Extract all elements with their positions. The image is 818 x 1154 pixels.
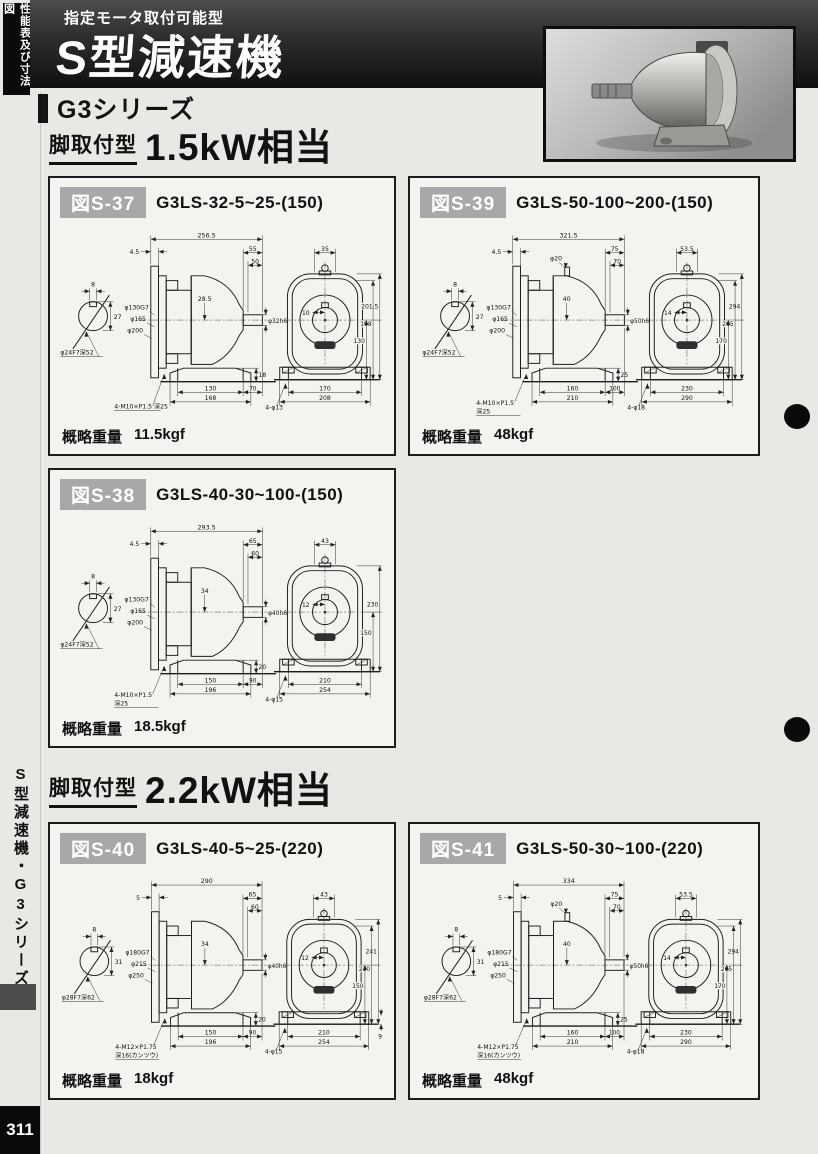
svg-text:27: 27	[114, 314, 122, 321]
svg-text:31: 31	[477, 959, 485, 966]
svg-text:φ200: φ200	[127, 620, 143, 627]
figure-model-number: G3LS-50-30~100-(220)	[516, 839, 703, 859]
svg-text:28.5: 28.5	[198, 296, 212, 303]
svg-text:深25: 深25	[476, 407, 490, 415]
figure-tag: 図S-37	[60, 187, 146, 218]
svg-text:φ130G7: φ130G7	[124, 304, 149, 311]
figure-header: 図S-39 G3LS-50-100~200-(150)	[420, 187, 713, 218]
svg-text:53.5: 53.5	[680, 246, 694, 253]
figure-model-number: G3LS-40-5~25-(220)	[156, 839, 323, 859]
svg-text:290: 290	[201, 878, 213, 885]
svg-text:φ250: φ250	[128, 972, 144, 979]
technical-drawing: 827φ24F7深52256.54.55550φ130G7φ165φ20028.…	[52, 220, 392, 424]
svg-text:294: 294	[728, 950, 739, 956]
svg-text:130: 130	[205, 385, 217, 392]
svg-text:14: 14	[664, 310, 672, 317]
svg-text:208: 208	[319, 395, 331, 402]
weight-value: 18kgf	[134, 1070, 173, 1091]
svg-text:34: 34	[201, 588, 209, 595]
svg-text:φ28F7深62: φ28F7深62	[424, 993, 457, 1001]
svg-text:φ20: φ20	[550, 255, 562, 262]
svg-text:8: 8	[91, 281, 95, 288]
page-number: 311	[0, 1106, 40, 1154]
svg-text:φ200: φ200	[127, 328, 143, 335]
svg-text:12: 12	[301, 956, 309, 962]
svg-text:φ165: φ165	[130, 316, 146, 323]
svg-text:210: 210	[567, 395, 579, 402]
corner-index-tab: 性能表及び寸法図	[3, 3, 30, 95]
svg-text:100: 100	[609, 386, 620, 392]
svg-text:4-φ18: 4-φ18	[627, 1049, 645, 1056]
punch-hole-dot	[784, 404, 810, 429]
svg-text:4-φ15: 4-φ15	[265, 1049, 283, 1056]
svg-text:φ20: φ20	[550, 901, 562, 908]
svg-text:160: 160	[567, 1030, 579, 1037]
svg-text:8: 8	[454, 927, 458, 934]
weight-label: 概略重量	[62, 426, 122, 447]
technical-drawing: 827φ24F7深52293.54.56560φ130G7φ165φ20034φ…	[52, 512, 392, 716]
product-photo	[543, 26, 796, 162]
technical-drawing: 831φ28F7深6229056560φ180G7φ215φ25034φ40h6…	[52, 866, 392, 1068]
svg-text:4.5: 4.5	[491, 249, 501, 256]
svg-text:4-M10×P1.5: 4-M10×P1.5	[476, 400, 514, 407]
drawing-svg: 831φ28F7深6229056560φ180G7φ215φ25034φ40h6…	[52, 866, 392, 1068]
svg-text:170: 170	[716, 338, 728, 345]
svg-text:55: 55	[249, 246, 257, 253]
svg-text:φ50h6: φ50h6	[630, 319, 649, 325]
svg-text:φ130G7: φ130G7	[486, 304, 511, 311]
svg-text:31: 31	[115, 959, 123, 966]
power-rating-label: 2.2kW相当	[145, 773, 333, 808]
svg-text:φ250: φ250	[490, 972, 506, 979]
svg-text:201.5: 201.5	[361, 304, 378, 311]
figure-header: 図S-41 G3LS-50-30~100-(220)	[420, 833, 703, 864]
svg-text:φ50h6: φ50h6	[630, 964, 649, 970]
svg-text:150: 150	[205, 1030, 217, 1037]
weight-value: 11.5kgf	[134, 426, 185, 447]
svg-text:170: 170	[714, 984, 725, 990]
svg-text:φ24F7深52: φ24F7深52	[422, 349, 455, 357]
svg-text:53.5: 53.5	[679, 891, 693, 898]
svg-text:φ24F7深52: φ24F7深52	[60, 349, 93, 357]
sidebar-index-tab	[0, 984, 36, 1010]
svg-text:4-M12×P1.75: 4-M12×P1.75	[477, 1044, 518, 1051]
svg-text:196: 196	[205, 1039, 217, 1046]
svg-text:4-M10×P1.5: 4-M10×P1.5	[114, 692, 152, 699]
svg-text:150: 150	[352, 984, 363, 990]
figure-s40: 図S-40 G3LS-40-5~25-(220) 831φ28F7深622905…	[48, 822, 396, 1100]
svg-text:256.5: 256.5	[198, 232, 216, 239]
weight-value: 18.5kgf	[134, 718, 186, 739]
power-rating-label: 1.5kW相当	[145, 130, 333, 165]
svg-text:4-φ18: 4-φ18	[627, 405, 645, 412]
figure-s38: 図S-38 G3LS-40-30~100-(150) 827φ24F7深5229…	[48, 468, 396, 748]
figure-tag: 図S-39	[420, 187, 506, 218]
svg-text:4-M10×P1.5 深25: 4-M10×P1.5 深25	[114, 403, 168, 411]
svg-text:9: 9	[378, 1034, 382, 1040]
svg-text:150: 150	[205, 677, 217, 684]
svg-text:90: 90	[249, 678, 257, 684]
svg-text:34: 34	[201, 941, 209, 948]
figure-model-number: G3LS-32-5~25-(150)	[156, 193, 323, 213]
svg-text:241: 241	[366, 950, 377, 956]
weight-value: 48kgf	[494, 426, 533, 447]
svg-text:254: 254	[318, 1039, 330, 1046]
svg-text:50: 50	[251, 258, 259, 265]
weight-label: 概略重量	[62, 718, 122, 739]
svg-text:290: 290	[680, 1039, 692, 1046]
figure-tag: 図S-40	[60, 833, 146, 864]
figure-s39: 図S-39 G3LS-50-100~200-(150) 827φ24F7深523…	[408, 176, 760, 456]
mount-type-label: 脚取付型	[49, 772, 137, 808]
weight-label: 概略重量	[62, 1070, 122, 1091]
weight-row: 概略重量 11.5kgf	[62, 426, 185, 447]
svg-text:160: 160	[567, 385, 579, 392]
page-edge-line	[40, 92, 41, 1154]
svg-text:4.5: 4.5	[129, 541, 139, 548]
series-title: G3シリーズ	[57, 90, 195, 126]
svg-text:210: 210	[318, 1030, 330, 1037]
svg-text:φ32h6: φ32h6	[268, 319, 287, 325]
drawing-svg: 827φ24F7深52321.54.5φ207570φ130G7φ165φ200…	[412, 220, 756, 424]
weight-row: 概略重量 18.5kgf	[62, 718, 186, 739]
svg-text:334: 334	[563, 878, 575, 885]
svg-text:75: 75	[611, 246, 619, 253]
svg-text:φ40h6: φ40h6	[268, 611, 287, 617]
svg-text:φ165: φ165	[130, 608, 146, 615]
svg-text:φ200: φ200	[489, 328, 505, 335]
svg-text:φ215: φ215	[131, 961, 147, 968]
weight-value: 48kgf	[494, 1070, 533, 1091]
svg-text:321.5: 321.5	[560, 232, 578, 239]
svg-text:27: 27	[114, 606, 122, 613]
svg-text:196: 196	[205, 687, 217, 694]
svg-text:210: 210	[567, 1039, 579, 1046]
svg-text:深25: 深25	[114, 699, 128, 707]
svg-text:φ130G7: φ130G7	[124, 596, 149, 603]
section-heading-1-5kw: 脚取付型 1.5kW相当	[49, 129, 333, 165]
svg-text:254: 254	[319, 687, 331, 694]
svg-text:170: 170	[319, 385, 331, 392]
svg-text:130: 130	[354, 338, 366, 345]
svg-text:8: 8	[92, 927, 96, 934]
svg-text:φ28F7深62: φ28F7深62	[62, 993, 95, 1001]
weight-row: 概略重量 48kgf	[422, 426, 533, 447]
catalog-page: { "page": { "corner_tab": "性能表及び寸法図", "h…	[0, 0, 818, 1154]
svg-text:60: 60	[251, 904, 259, 911]
weight-row: 概略重量 48kgf	[422, 1070, 533, 1091]
svg-text:230: 230	[680, 1030, 692, 1037]
svg-text:5: 5	[498, 895, 502, 902]
svg-text:4-φ13: 4-φ13	[265, 405, 283, 412]
svg-text:150: 150	[360, 630, 372, 637]
drawing-svg: 827φ24F7深52256.54.55550φ130G7φ165φ20028.…	[52, 220, 392, 424]
svg-text:168: 168	[205, 395, 217, 402]
svg-text:290: 290	[681, 395, 693, 402]
svg-text:230: 230	[367, 601, 379, 608]
figure-header: 図S-40 G3LS-40-5~25-(220)	[60, 833, 323, 864]
figure-model-number: G3LS-50-100~200-(150)	[516, 193, 713, 213]
weight-label: 概略重量	[422, 426, 482, 447]
sidebar-series-label: S型減速機・G3シリーズ	[10, 766, 31, 988]
svg-text:10: 10	[302, 310, 310, 317]
figure-s37: 図S-37 G3LS-32-5~25-(150) 827φ24F7深52256.…	[48, 176, 396, 456]
svg-text:深16(カンツウ): 深16(カンツウ)	[115, 1052, 158, 1060]
svg-text:4-M12×P1.75: 4-M12×P1.75	[115, 1044, 156, 1051]
series-heading: G3シリーズ	[38, 90, 195, 126]
svg-text:φ180G7: φ180G7	[487, 950, 511, 957]
svg-text:27: 27	[476, 314, 484, 321]
svg-text:φ215: φ215	[493, 961, 509, 968]
page-title: S型減速機	[54, 19, 288, 88]
svg-text:40: 40	[563, 296, 571, 303]
svg-text:70: 70	[613, 904, 621, 911]
svg-text:φ165: φ165	[492, 316, 508, 323]
svg-text:φ24F7深52: φ24F7深52	[60, 641, 93, 649]
figure-model-number: G3LS-40-30~100-(150)	[156, 485, 343, 505]
weight-label: 概略重量	[422, 1070, 482, 1091]
svg-text:70: 70	[249, 386, 257, 392]
section-heading-2-2kw: 脚取付型 2.2kW相当	[49, 772, 333, 808]
svg-text:65: 65	[249, 538, 257, 545]
svg-text:230: 230	[681, 385, 693, 392]
svg-text:8: 8	[453, 281, 457, 288]
svg-text:70: 70	[613, 258, 621, 265]
svg-text:43: 43	[321, 538, 329, 545]
svg-text:40: 40	[563, 941, 571, 948]
svg-text:8: 8	[91, 573, 95, 580]
svg-text:294: 294	[729, 304, 741, 311]
svg-text:5: 5	[136, 895, 140, 902]
svg-text:12: 12	[302, 602, 310, 609]
svg-text:φ180G7: φ180G7	[125, 950, 149, 957]
svg-text:43: 43	[320, 891, 328, 898]
svg-text:293.5: 293.5	[198, 524, 216, 531]
figure-tag: 図S-41	[420, 833, 506, 864]
svg-text:4-φ15: 4-φ15	[265, 697, 283, 704]
svg-text:φ40h6: φ40h6	[268, 964, 287, 970]
svg-text:75: 75	[611, 891, 619, 898]
svg-text:4.5: 4.5	[129, 249, 139, 256]
svg-text:100: 100	[609, 1031, 620, 1037]
svg-text:35: 35	[321, 246, 329, 253]
technical-drawing: 827φ24F7深52321.54.5φ207570φ130G7φ165φ200…	[412, 220, 756, 424]
svg-text:90: 90	[249, 1031, 257, 1037]
figure-tag: 図S-38	[60, 479, 146, 510]
svg-text:65: 65	[249, 891, 257, 898]
drawing-svg: 831φ28F7深623345φ207570φ180G7φ215φ25040φ5…	[412, 866, 756, 1068]
figure-s41: 図S-41 G3LS-50-30~100-(220) 831φ28F7深6233…	[408, 822, 760, 1100]
mount-type-label: 脚取付型	[49, 129, 137, 165]
svg-text:14: 14	[663, 956, 671, 962]
drawing-svg: 827φ24F7深52293.54.56560φ130G7φ165φ20034φ…	[52, 512, 392, 716]
svg-text:60: 60	[251, 550, 259, 557]
svg-text:深16(カンツウ): 深16(カンツウ)	[477, 1052, 520, 1060]
gear-reducer-photo-illustration	[546, 29, 793, 159]
svg-text:210: 210	[319, 677, 331, 684]
punch-hole-dot	[784, 717, 810, 742]
weight-row: 概略重量 18kgf	[62, 1070, 173, 1091]
figure-header: 図S-37 G3LS-32-5~25-(150)	[60, 187, 323, 218]
figure-header: 図S-38 G3LS-40-30~100-(150)	[60, 479, 343, 510]
technical-drawing: 831φ28F7深623345φ207570φ180G7φ215φ25040φ5…	[412, 866, 756, 1068]
